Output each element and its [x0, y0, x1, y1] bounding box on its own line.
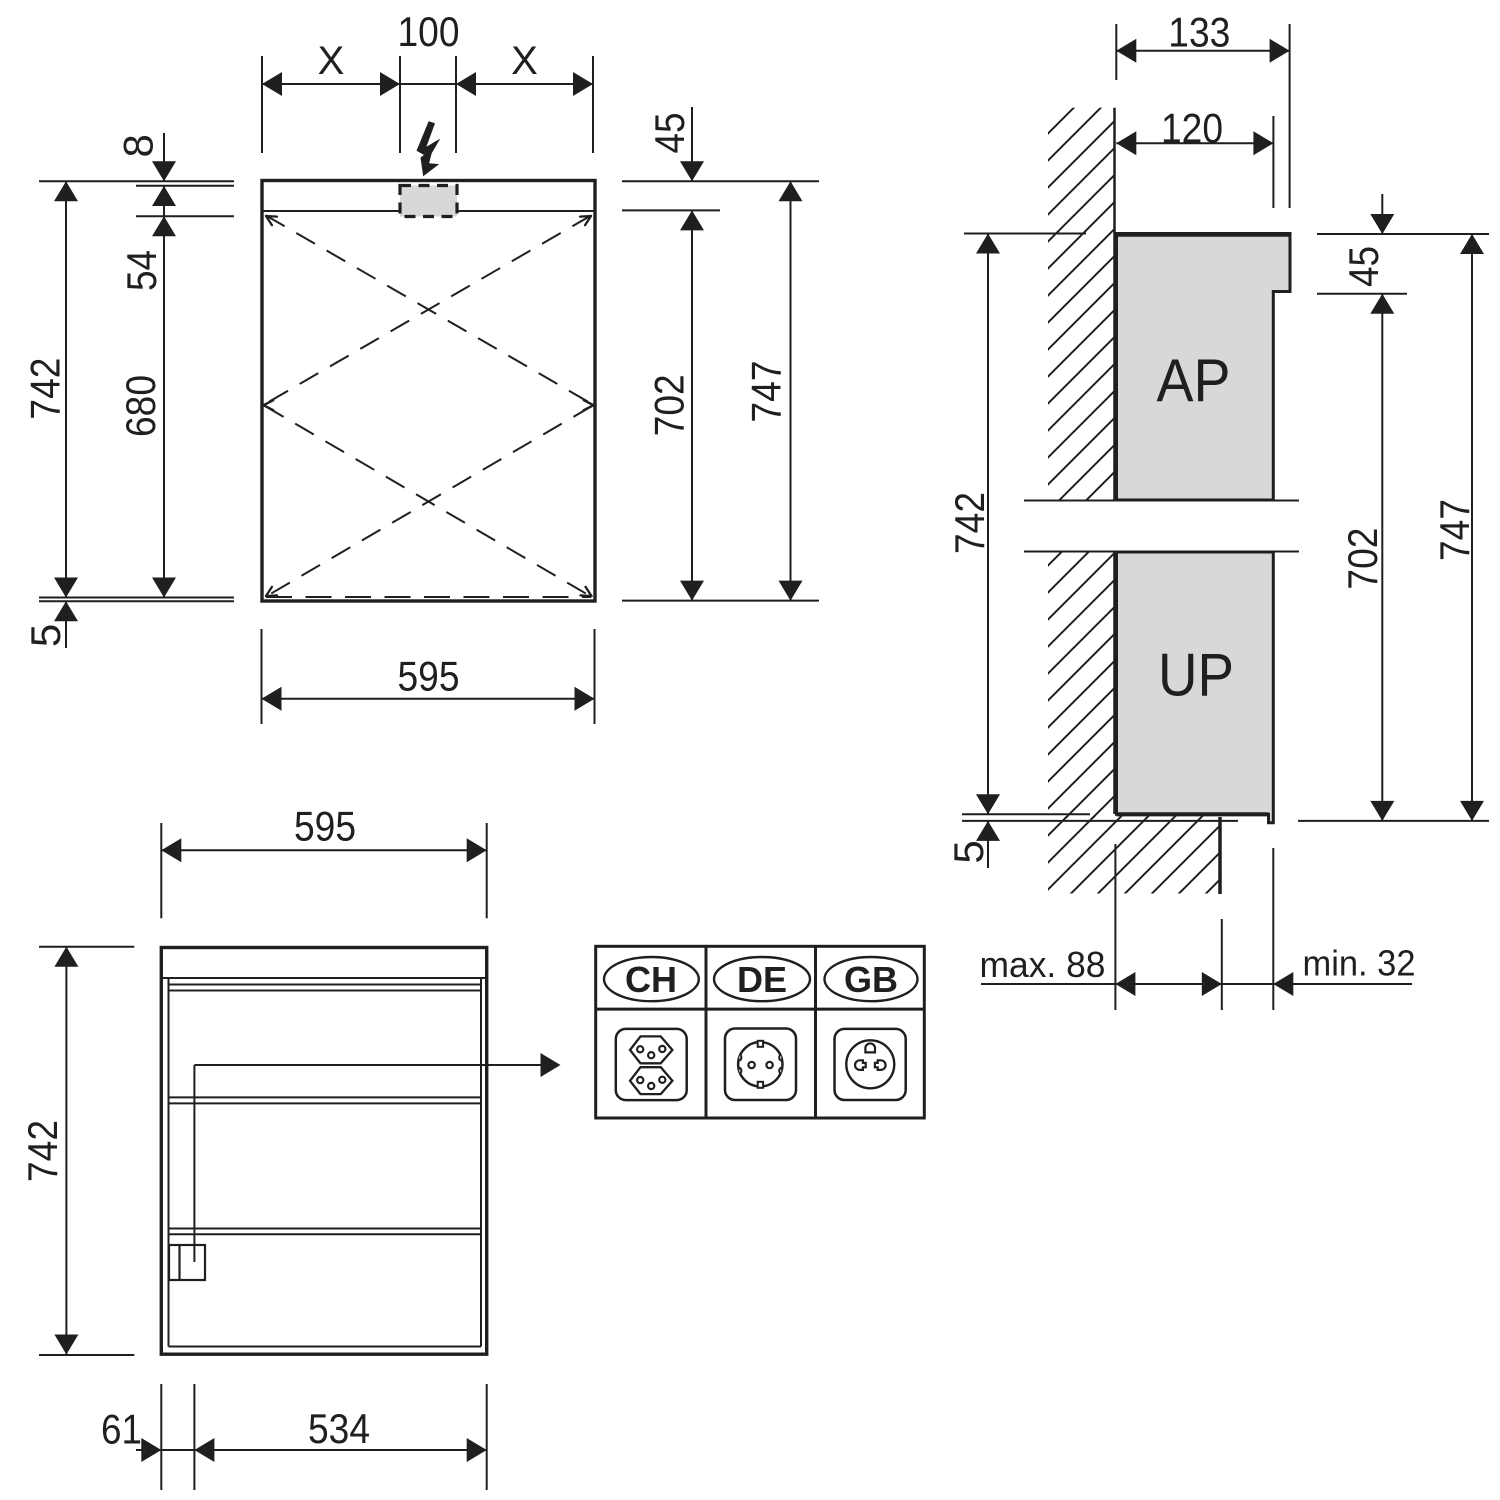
svg-text:UP: UP: [1158, 642, 1234, 709]
svg-text:742: 742: [946, 492, 993, 554]
svg-text:5: 5: [22, 624, 69, 647]
svg-text:120: 120: [1161, 105, 1223, 152]
svg-text:54: 54: [118, 250, 165, 291]
svg-text:5: 5: [945, 840, 992, 863]
svg-text:min. 32: min. 32: [1303, 942, 1416, 983]
svg-text:45: 45: [1340, 246, 1387, 287]
svg-text:X: X: [318, 39, 345, 83]
svg-text:X: X: [511, 39, 538, 83]
svg-text:747: 747: [1431, 499, 1478, 561]
svg-text:AP: AP: [1157, 347, 1231, 414]
svg-text:680: 680: [117, 375, 164, 437]
svg-text:DE: DE: [737, 959, 787, 1000]
svg-text:61: 61: [101, 1406, 142, 1453]
svg-text:747: 747: [743, 361, 790, 423]
svg-text:742: 742: [21, 358, 68, 420]
svg-text:534: 534: [308, 1405, 370, 1452]
svg-text:CH: CH: [625, 959, 677, 1000]
svg-text:GB: GB: [844, 959, 898, 1000]
svg-text:702: 702: [1339, 528, 1386, 590]
svg-text:45: 45: [646, 113, 693, 154]
svg-text:742: 742: [19, 1120, 66, 1182]
svg-text:595: 595: [294, 803, 356, 850]
svg-text:133: 133: [1168, 9, 1230, 56]
svg-text:max. 88: max. 88: [980, 944, 1106, 985]
svg-text:595: 595: [398, 653, 460, 700]
svg-text:100: 100: [398, 8, 460, 55]
svg-text:702: 702: [646, 374, 693, 436]
svg-text:8: 8: [115, 134, 162, 157]
